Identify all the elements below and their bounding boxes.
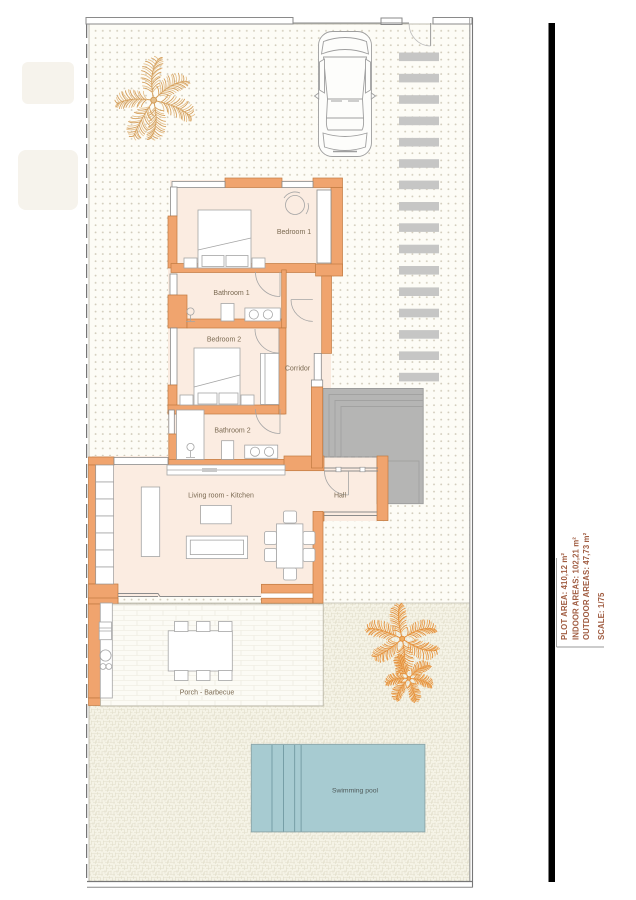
svg-text:OUTDOOR AREAS: 47,73 m²: OUTDOOR AREAS: 47,73 m²	[582, 532, 591, 640]
svg-text:Bedroom 2: Bedroom 2	[207, 337, 241, 344]
svg-text:PLOT AREA: 410,12 m²: PLOT AREA: 410,12 m²	[560, 553, 569, 640]
svg-text:Hall: Hall	[334, 493, 347, 500]
svg-text:INDOOR AREAS: 102,21 m²: INDOOR AREAS: 102,21 m²	[572, 537, 581, 640]
svg-text:Porch - Barbecue: Porch - Barbecue	[180, 690, 235, 697]
svg-text:Corridor: Corridor	[285, 366, 311, 373]
svg-text:Bathroom 2: Bathroom 2	[214, 428, 250, 435]
svg-text:SCALE: 1/75: SCALE: 1/75	[597, 592, 606, 640]
svg-text:Bedroom 1: Bedroom 1	[277, 229, 311, 236]
svg-text:Bathroom 1: Bathroom 1	[213, 290, 249, 297]
svg-text:Living room - Kitchen: Living room - Kitchen	[188, 493, 254, 500]
svg-text:Swimming pool: Swimming pool	[332, 788, 379, 795]
